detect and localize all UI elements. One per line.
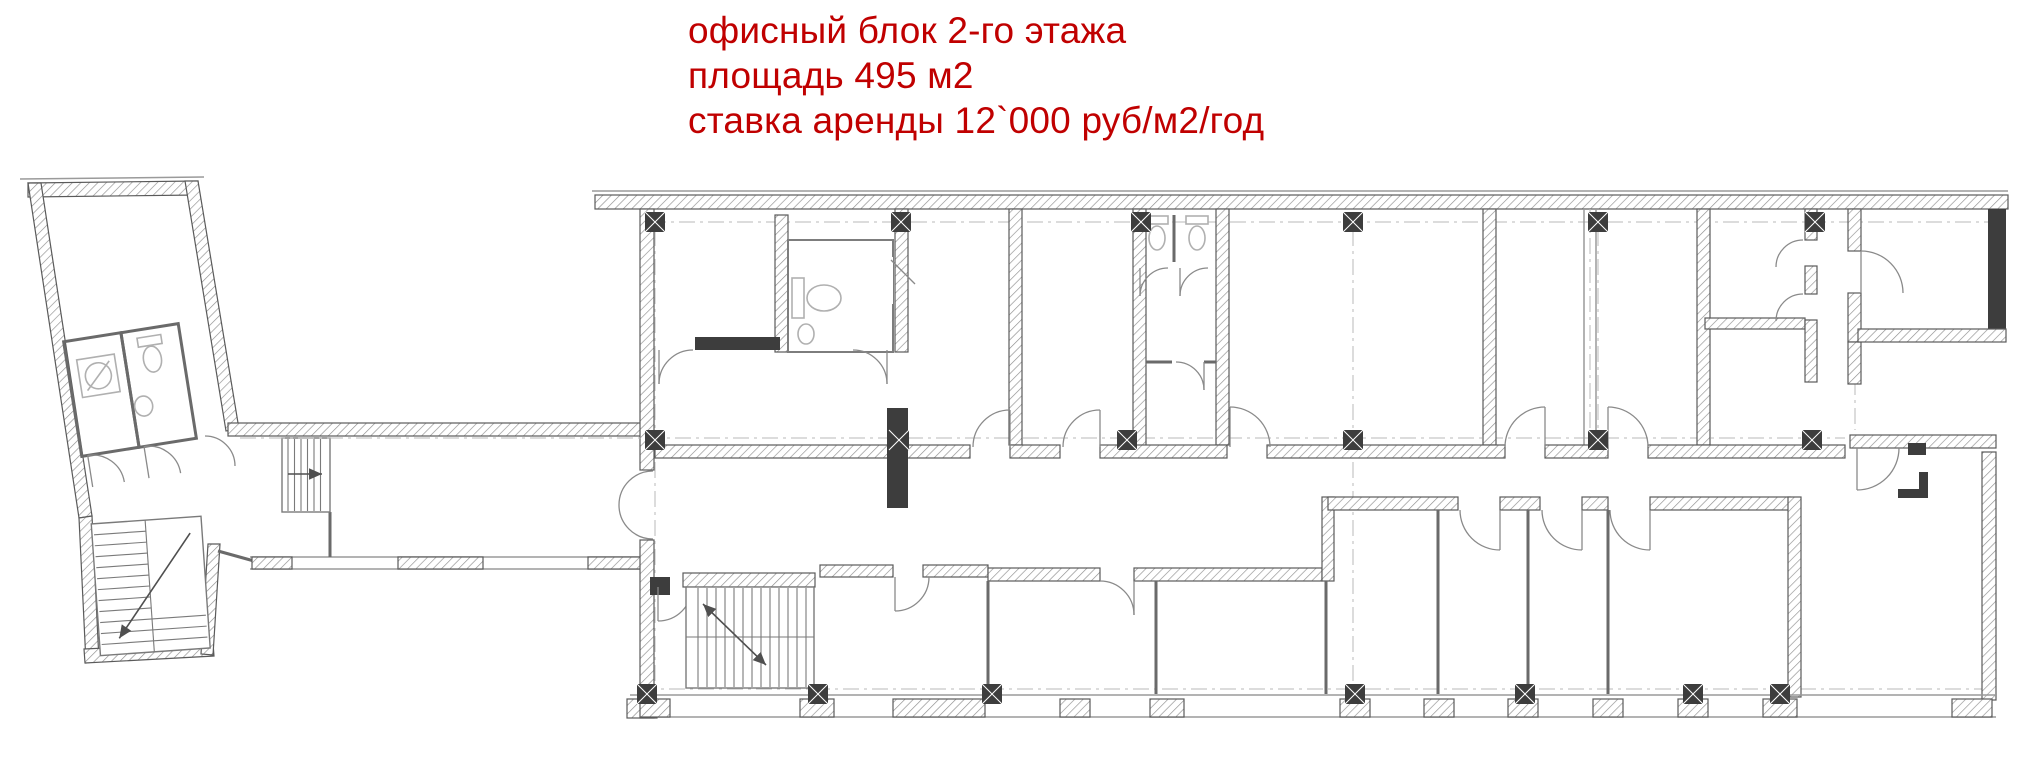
door-arc bbox=[1505, 407, 1545, 447]
l-staircase bbox=[91, 516, 210, 655]
door-arc bbox=[1610, 510, 1650, 550]
shaft-column bbox=[887, 408, 908, 508]
bottom-room-partitions bbox=[988, 497, 1801, 697]
toilet-bowl-icon bbox=[807, 285, 841, 311]
top-right-rooms bbox=[1705, 209, 2006, 384]
column bbox=[1131, 212, 1151, 232]
entry-double-door bbox=[619, 471, 653, 505]
door-arc bbox=[1180, 268, 1208, 296]
column bbox=[1588, 212, 1608, 232]
window-pier bbox=[252, 557, 292, 569]
toilet-bowl-icon bbox=[1189, 226, 1205, 250]
corner-room-bottom-wall bbox=[1858, 329, 2006, 342]
column bbox=[982, 684, 1002, 704]
column bbox=[1117, 430, 1137, 450]
door-arc bbox=[1460, 510, 1500, 550]
left-wing-right-wall bbox=[185, 181, 239, 431]
column bbox=[637, 684, 657, 704]
left-wing bbox=[20, 177, 254, 663]
door-arc bbox=[1608, 407, 1648, 447]
canopy-edge-line bbox=[20, 177, 204, 179]
column bbox=[891, 212, 911, 232]
window-pier bbox=[1593, 699, 1623, 717]
right-end-room bbox=[1850, 435, 1996, 700]
window-pier bbox=[1150, 699, 1184, 717]
window-pier bbox=[1424, 699, 1454, 717]
toilet-tank-icon bbox=[1186, 216, 1208, 224]
toilet-tank-icon bbox=[137, 335, 162, 348]
window-pier bbox=[398, 557, 483, 569]
entry-double-door bbox=[619, 505, 653, 539]
main-staircase bbox=[686, 587, 814, 688]
door-arc bbox=[853, 350, 887, 384]
door-arc bbox=[1776, 240, 1803, 267]
window-pier bbox=[1952, 699, 1992, 717]
column bbox=[1770, 684, 1790, 704]
wing-jog-wall bbox=[218, 551, 254, 561]
annotation-line-1: офисный блок 2-го этажа bbox=[688, 8, 1264, 53]
sink-icon bbox=[798, 324, 814, 344]
door-arc bbox=[659, 350, 693, 384]
column bbox=[1802, 430, 1822, 450]
main-block bbox=[240, 191, 2008, 718]
duct-shaft bbox=[695, 337, 780, 350]
door-arc bbox=[895, 577, 929, 611]
top-room-partitions bbox=[775, 209, 1710, 447]
door-arc bbox=[973, 410, 1010, 447]
column bbox=[645, 430, 665, 450]
room1-wc bbox=[659, 240, 915, 384]
connecting-corridor bbox=[228, 423, 643, 569]
door-arc bbox=[1776, 294, 1803, 321]
door-arc bbox=[205, 436, 235, 466]
door-arc bbox=[1861, 251, 1903, 293]
screenshot-root: офисный блок 2-го этажа площадь 495 м2 с… bbox=[0, 0, 2032, 767]
column bbox=[1515, 684, 1535, 704]
toilet-bowl-icon bbox=[1149, 226, 1165, 250]
straight-staircase bbox=[282, 438, 330, 512]
column bbox=[1345, 684, 1365, 704]
door-arc bbox=[1542, 510, 1582, 550]
annotation-line-3: ставка аренды 12`000 руб/м2/год bbox=[688, 98, 1264, 143]
central-wc-block bbox=[1140, 215, 1216, 390]
corner-room-right-wall bbox=[1988, 209, 2006, 342]
column bbox=[650, 577, 670, 595]
sink-icon bbox=[133, 395, 154, 418]
door-arc bbox=[1063, 410, 1100, 447]
door-arc bbox=[1230, 407, 1270, 447]
toilet-tank-icon bbox=[792, 278, 804, 318]
column bbox=[645, 212, 665, 232]
column bbox=[1588, 430, 1608, 450]
column bbox=[1343, 430, 1363, 450]
column bbox=[889, 430, 909, 450]
bottom-facade bbox=[627, 695, 1996, 718]
door-arc bbox=[1100, 581, 1134, 615]
toilet-bowl-icon bbox=[142, 345, 164, 373]
door-arc bbox=[1857, 448, 1899, 490]
window-pier bbox=[588, 557, 643, 569]
corridor-bottom-walls bbox=[650, 497, 1790, 621]
right-facade-wall bbox=[1982, 452, 1996, 700]
annotation-block: офисный блок 2-го этажа площадь 495 м2 с… bbox=[688, 8, 1264, 143]
corridor-top-wall bbox=[655, 407, 1845, 508]
door-arc bbox=[1176, 362, 1204, 390]
corridor-top-wall bbox=[228, 423, 643, 436]
top-facade-wall bbox=[595, 195, 2008, 209]
window-pier bbox=[1060, 699, 1090, 717]
column bbox=[1805, 212, 1825, 232]
column bbox=[1343, 212, 1363, 232]
left-wing-top-wall bbox=[28, 181, 198, 197]
window-pier bbox=[893, 699, 985, 717]
column bbox=[808, 684, 828, 704]
annotation-line-2: площадь 495 м2 bbox=[688, 53, 1264, 98]
column bbox=[1683, 684, 1703, 704]
left-wing-left-wall bbox=[28, 183, 92, 518]
